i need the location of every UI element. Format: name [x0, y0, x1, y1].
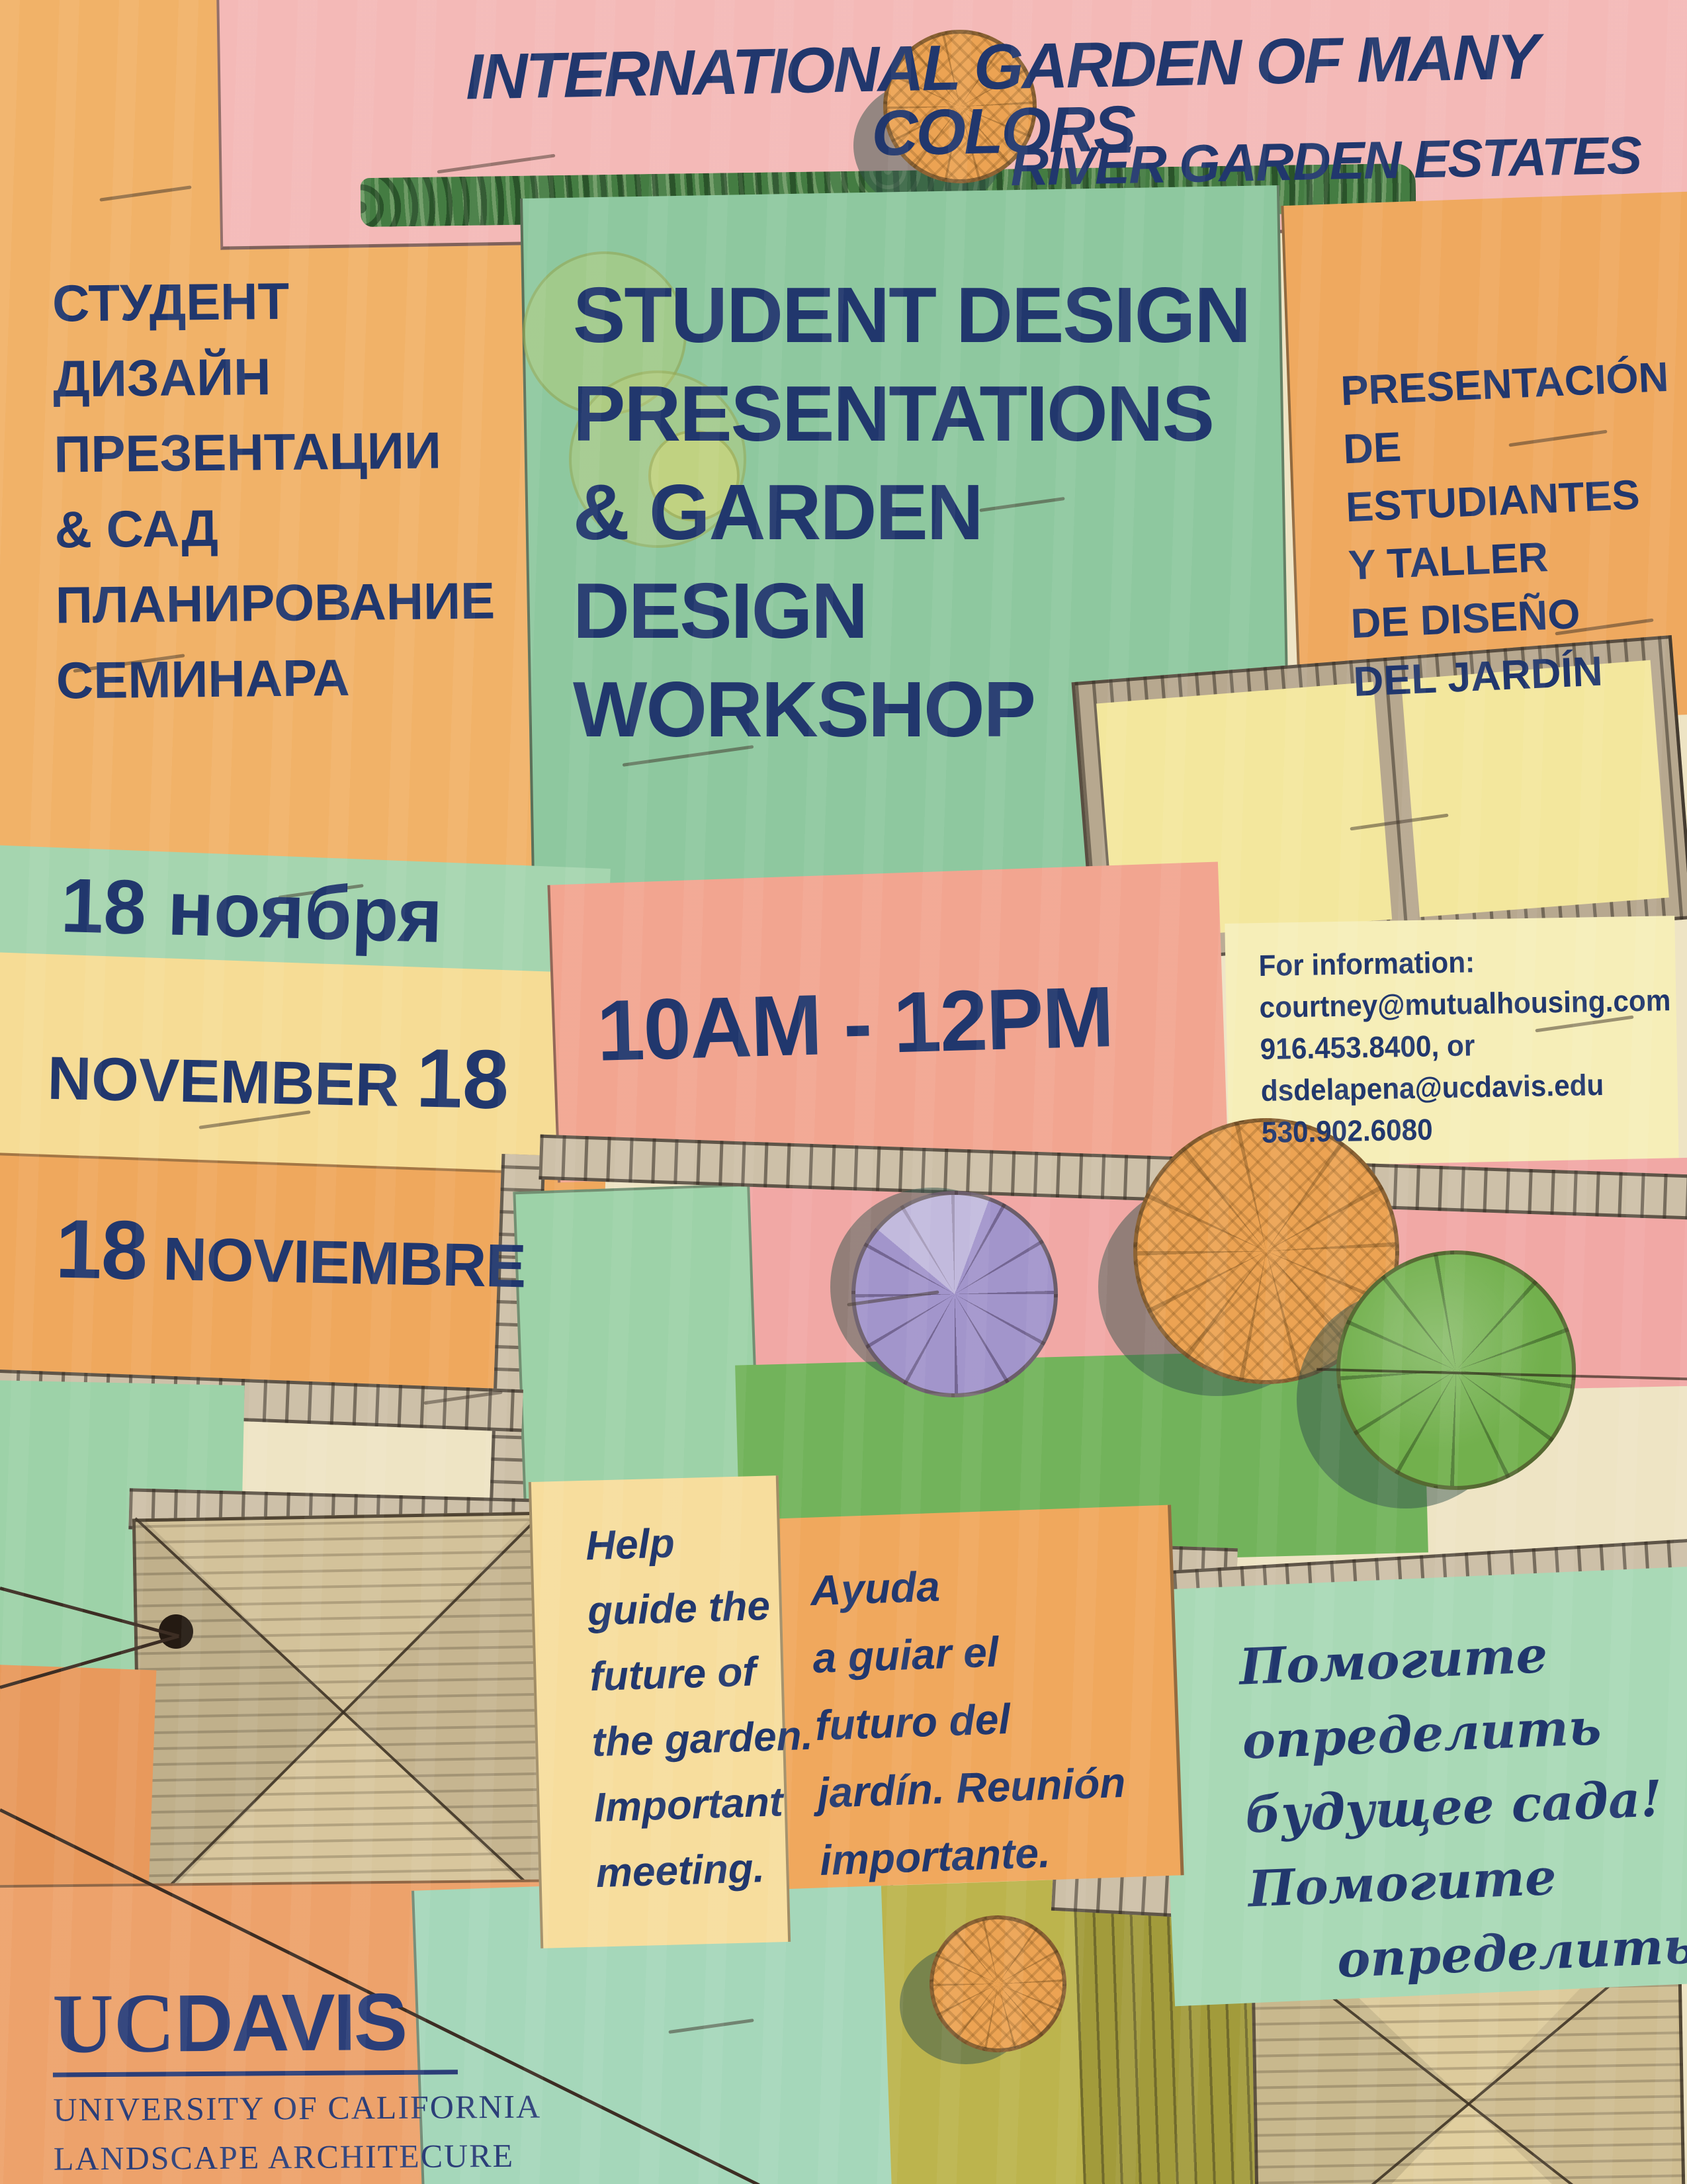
- message-en-line: guide the: [587, 1572, 810, 1644]
- logo-uc: UC: [52, 1976, 175, 2070]
- message-es-line: jardín. Reunión: [816, 1749, 1127, 1827]
- title-ru-line: ДИЗАЙН: [53, 337, 494, 417]
- title-block-spanish: PRESENTACIÓN DE ESTUDIANTES Y TALLER DE …: [1340, 347, 1687, 711]
- message-en-line: Important: [593, 1769, 816, 1841]
- date-es-month: NOVIEMBRE: [162, 1225, 526, 1300]
- date-en-day: 18: [415, 1031, 510, 1126]
- gazebo-ridge: [142, 1510, 546, 1914]
- date-en-month: NOVEMBER: [47, 1045, 400, 1119]
- message-spanish: Ayuda a guiar el futuro del jardín. Reun…: [809, 1546, 1129, 1894]
- title-block-english: STUDENT DESIGN PRESENTATIONS & GARDEN DE…: [573, 266, 1250, 759]
- message-es-line: a guiar el: [812, 1614, 1122, 1692]
- message-en-line: the garden.: [591, 1703, 814, 1775]
- title-ru-line: СЕМИНАРА: [56, 638, 496, 719]
- purple-tree-icon: [851, 1191, 1058, 1397]
- logo-university: UNIVERSITY OF CALIFORNIA: [53, 2087, 541, 2128]
- contact-info: For information: courtney@mutualhousing.…: [1258, 938, 1673, 1153]
- ucdavis-wordmark: UCDAVIS: [52, 1978, 541, 2066]
- logo-davis: DAVIS: [175, 1977, 406, 2068]
- date-russian: 18 ноября: [60, 867, 443, 954]
- small-tree-icon: [930, 1915, 1066, 2052]
- title-ru-line: & САД: [54, 488, 495, 568]
- date-spanish: 18 NOVIEMBRE: [55, 1207, 527, 1301]
- garden-workshop-poster: INTERNATIONAL GARDEN OF MANY COLORS RIVE…: [0, 0, 1687, 2184]
- title-ru-line: ПЛАНИРОВАНИЕ: [55, 563, 496, 643]
- logo-department: LANDSCAPE ARCHITECURE: [54, 2136, 542, 2177]
- title-es-line: DE ESTUDIANTES: [1342, 406, 1687, 537]
- ucdavis-logo: UCDAVIS UNIVERSITY OF CALIFORNIA LANDSCA…: [52, 1978, 542, 2177]
- message-english: Help guide the future of the garden. Imp…: [585, 1507, 818, 1906]
- contact-line: For information:: [1258, 938, 1670, 986]
- message-en-line: Help: [585, 1507, 808, 1579]
- title-en-line: DESIGN: [573, 562, 1250, 660]
- contact-line: 530.902.6080: [1261, 1104, 1673, 1153]
- event-time: 10AM - 12PM: [595, 973, 1113, 1074]
- date-english: NOVEMBER 18: [47, 1029, 510, 1122]
- gazebo-roof: [132, 1512, 554, 1913]
- title-en-line: STUDENT DESIGN: [573, 266, 1250, 365]
- title-en-line: PRESENTATIONS: [573, 365, 1250, 463]
- contact-line: 916.453.8400, or: [1260, 1021, 1672, 1070]
- message-es-line: futuro del: [814, 1681, 1124, 1759]
- contact-line: dsdelapena@ucdavis.edu: [1260, 1063, 1672, 1112]
- message-es-line: Ayuda: [809, 1546, 1119, 1624]
- message-en-line: future of: [589, 1638, 812, 1710]
- date-es-day: 18: [55, 1202, 148, 1297]
- title-ru-line: СТУДЕНТ: [52, 261, 492, 341]
- title-en-line: WORKSHOP: [573, 660, 1250, 759]
- logo-rule: [53, 2070, 458, 2077]
- title-block-russian: СТУДЕНТ ДИЗАЙН ПРЕЗЕНТАЦИИ & САД ПЛАНИРО…: [52, 261, 496, 719]
- contact-line: courtney@mutualhousing.com: [1259, 979, 1671, 1028]
- title-en-line: & GARDEN: [573, 463, 1250, 562]
- message-es-line: importante.: [818, 1816, 1129, 1894]
- poster-subtitle: RIVER GARDEN ESTATES: [1005, 129, 1641, 194]
- message-en-line: meeting.: [595, 1834, 818, 1906]
- title-ru-line: ПРЕЗЕНТАЦИИ: [54, 412, 494, 492]
- message-russian: Помогите определить будущее сада! Помоги…: [1238, 1612, 1687, 2001]
